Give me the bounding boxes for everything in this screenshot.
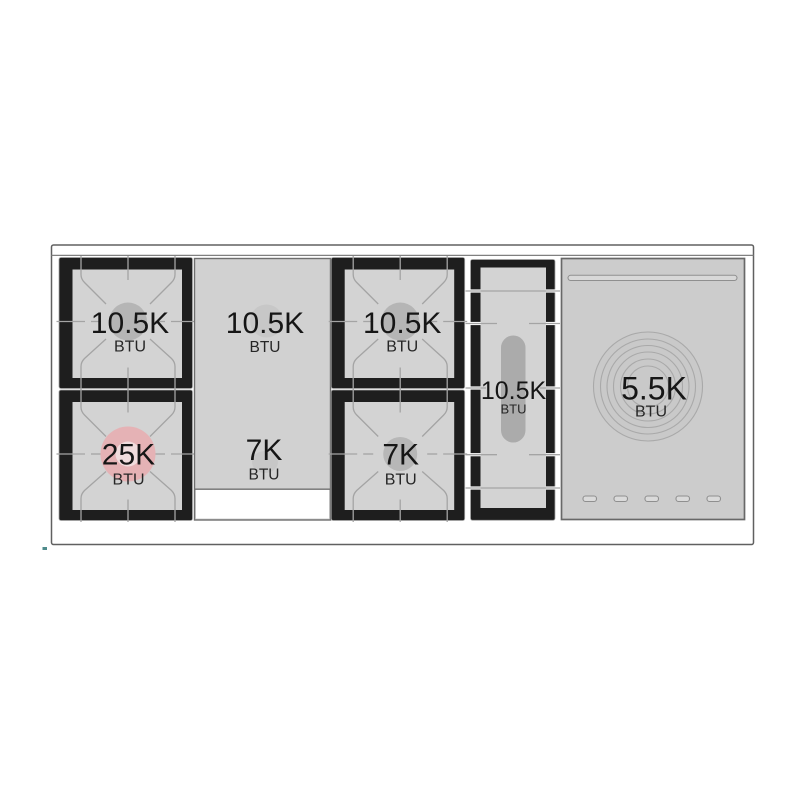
svg-text:7K: 7K	[382, 439, 419, 472]
svg-text:BTU: BTU	[113, 471, 145, 488]
svg-text:7K: 7K	[246, 434, 283, 467]
svg-text:BTU: BTU	[386, 339, 418, 356]
svg-text:5.5K: 5.5K	[621, 371, 687, 407]
svg-text:BTU: BTU	[114, 339, 146, 356]
svg-text:BTU: BTU	[249, 467, 280, 484]
svg-text:BTU: BTU	[501, 402, 527, 417]
svg-text:25K: 25K	[102, 439, 155, 472]
svg-text:10.5K: 10.5K	[226, 307, 304, 340]
svg-text:BTU: BTU	[250, 339, 281, 356]
svg-text:10.5K: 10.5K	[363, 307, 441, 340]
svg-text:10.5K: 10.5K	[91, 307, 169, 340]
svg-text:BTU: BTU	[635, 403, 667, 420]
svg-text:BTU: BTU	[385, 471, 417, 488]
